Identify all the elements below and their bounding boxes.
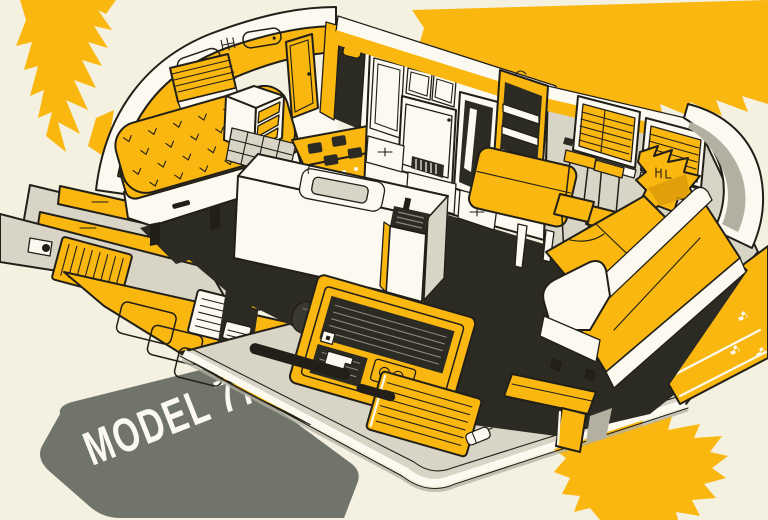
refrigerator — [398, 96, 456, 186]
wardrobe-door — [286, 34, 318, 118]
cabinet-door-tall — [370, 58, 404, 138]
caster-wheel — [28, 238, 52, 256]
trailer-cutaway-illustration: MODEL 77 — [0, 0, 768, 520]
duct-label — [321, 331, 336, 345]
illustration-canvas: MODEL 77 — [0, 0, 768, 520]
